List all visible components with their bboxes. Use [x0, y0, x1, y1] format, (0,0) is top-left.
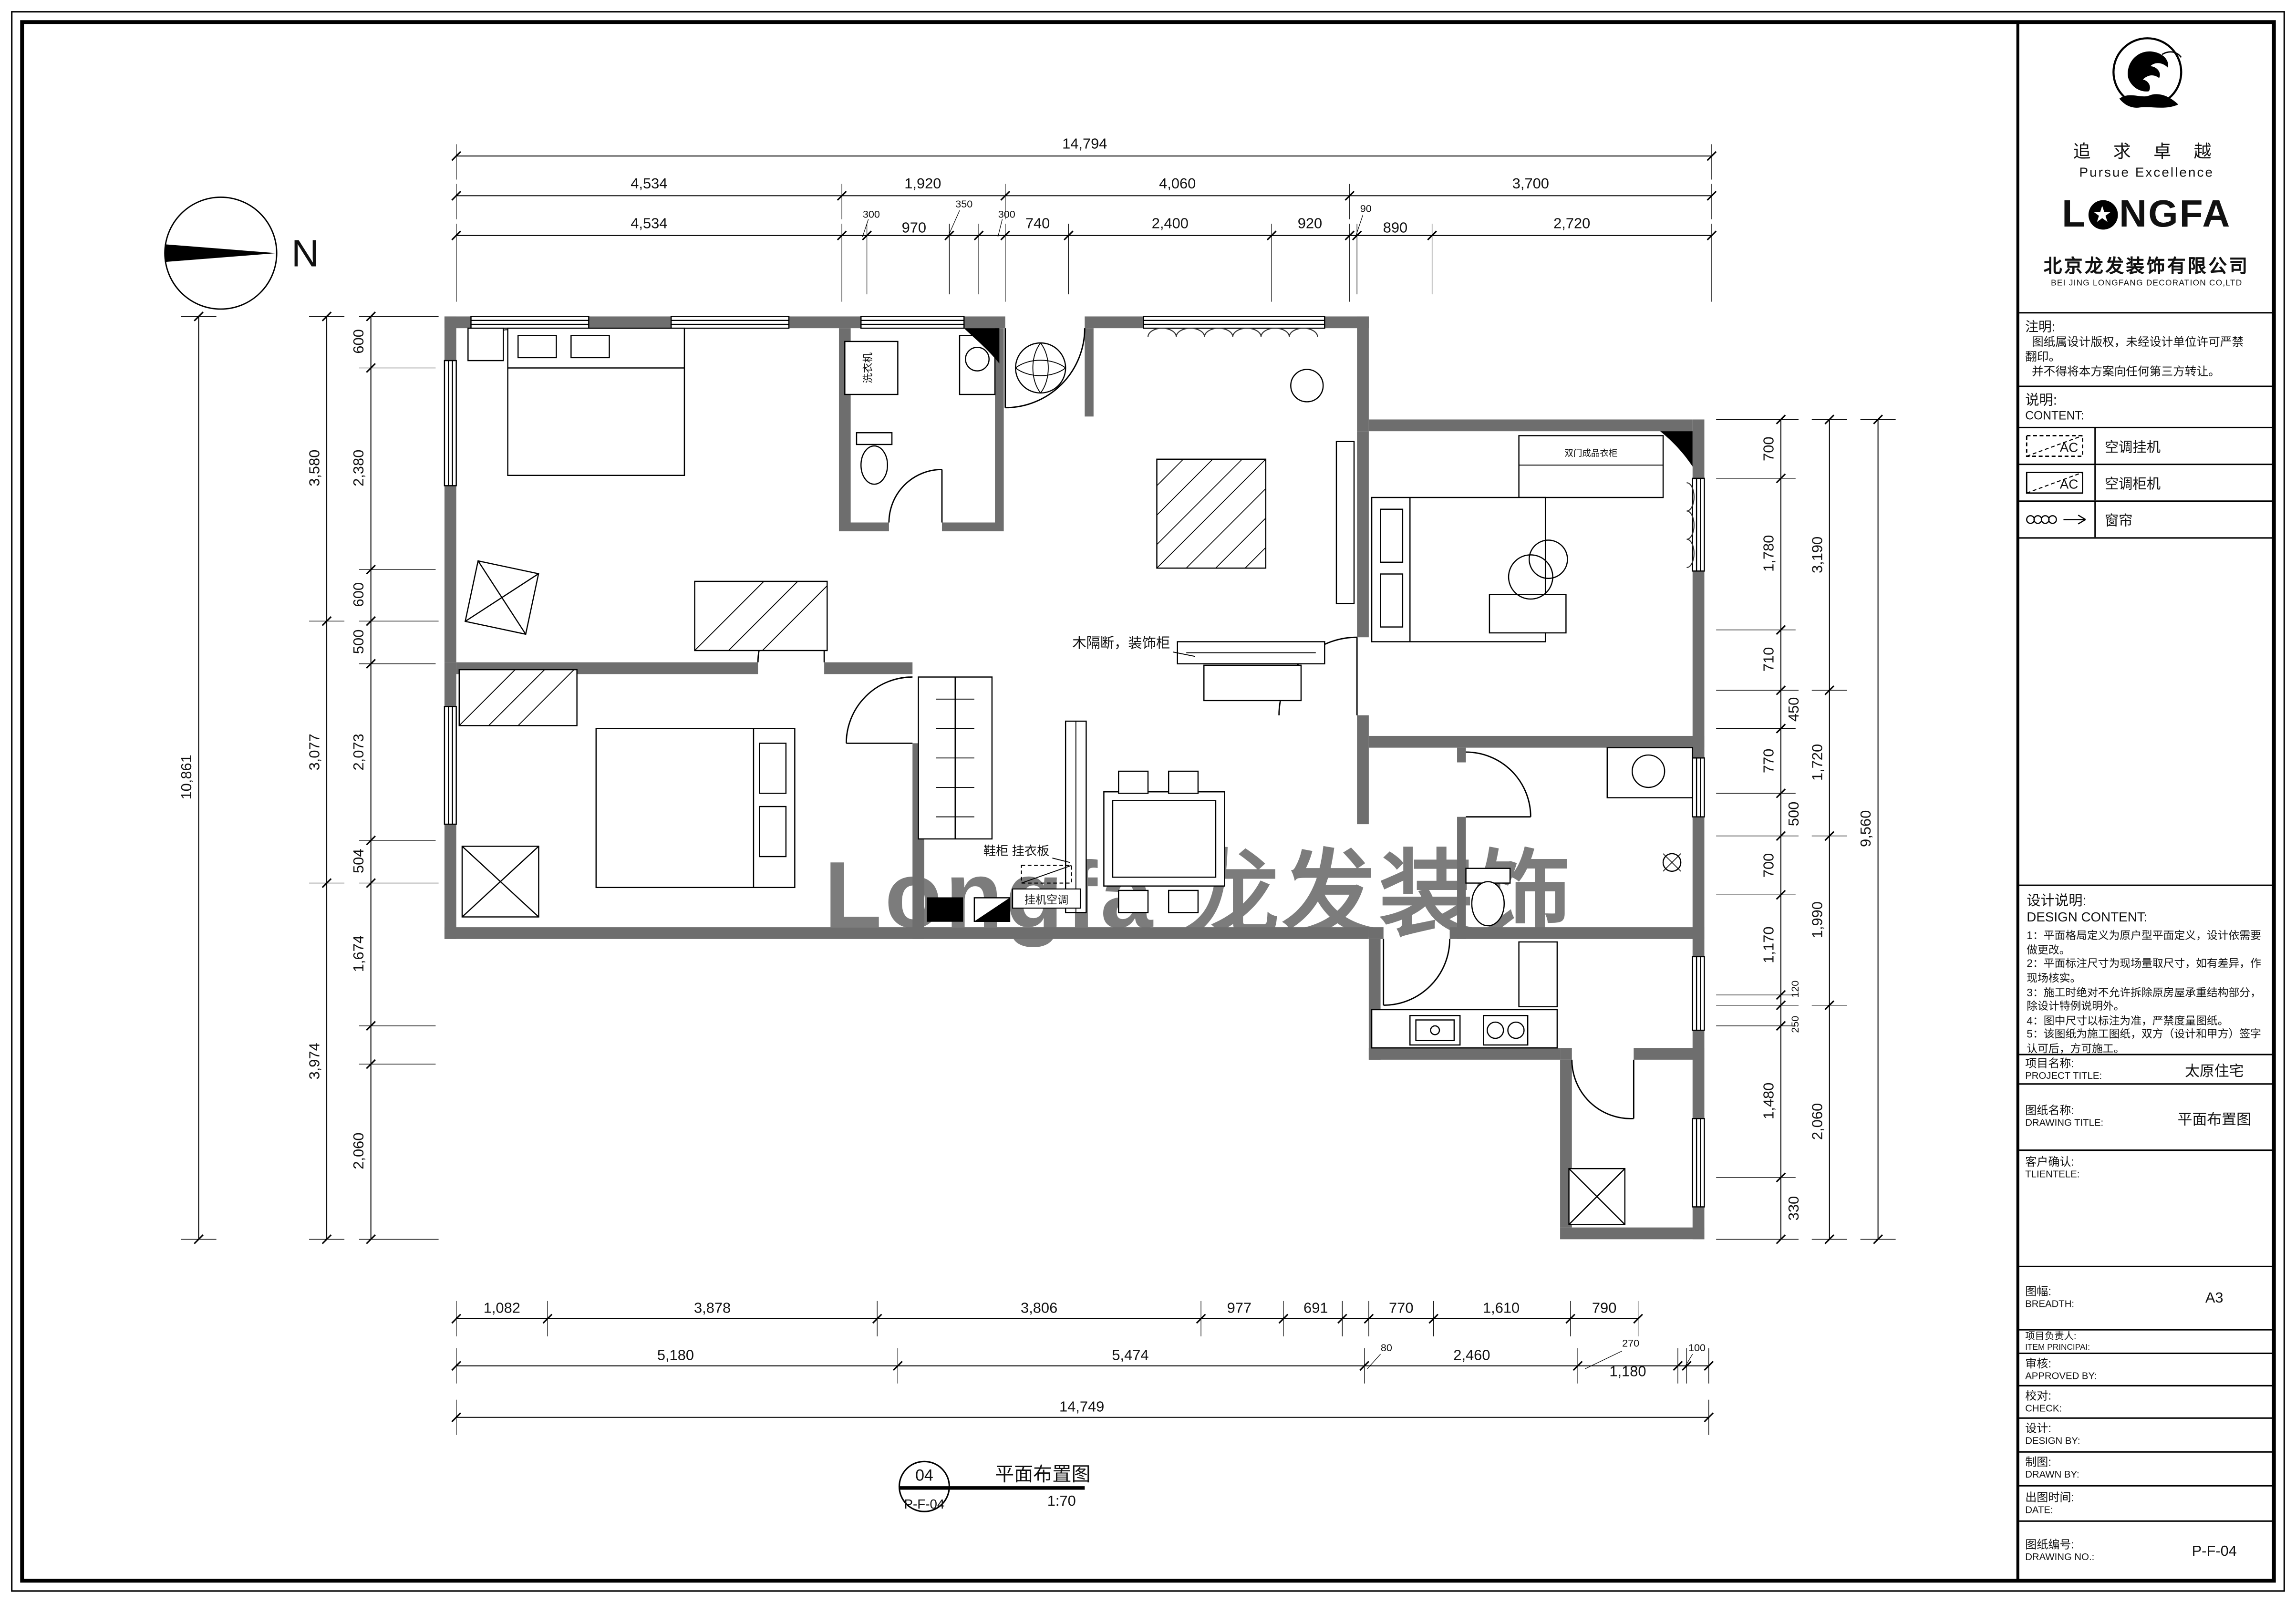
dim-text: 600	[350, 582, 367, 607]
dim-text: 300	[863, 208, 880, 220]
basin2	[1607, 748, 1693, 798]
kitchen-door	[1384, 939, 1450, 1005]
client-confirm-row: 客户确认:TLIENTELE:	[2019, 1149, 2274, 1266]
legend-row: AC 空调挂机	[2019, 427, 2274, 464]
dim-text: 920	[1298, 215, 1322, 231]
legend-row: 窗帘	[2019, 500, 2274, 537]
kitchen-counter	[1372, 1010, 1557, 1048]
design-note: 2：平面标注尺寸为现场量取尺寸，如有差异，作现场核实。	[2027, 957, 2266, 985]
row-label-cn: 审核:	[2025, 1358, 2155, 1371]
brand-wordmark: L★NGFA	[2019, 191, 2274, 237]
rug	[465, 561, 538, 634]
furniture	[459, 328, 1693, 1224]
ac-cabinet-unit-icon: AC	[2023, 466, 2091, 499]
window	[445, 706, 456, 824]
bedroom2-door	[846, 677, 912, 744]
wardrobe-right	[1519, 435, 1663, 497]
approved-value	[2155, 1354, 2274, 1385]
threshold-solid	[927, 898, 962, 921]
round-table	[1291, 370, 1323, 402]
dim-text: 90	[1360, 202, 1372, 214]
dim-text: 1,720	[1809, 744, 1825, 781]
principal-value	[2155, 1331, 2274, 1353]
check-value	[2155, 1386, 2274, 1417]
shoe-cabinet	[1065, 721, 1086, 912]
partition-label: 木隔断，装饰柜	[1072, 635, 1170, 651]
dim-text: 330	[1785, 1196, 1802, 1220]
design-by-value	[2155, 1419, 2274, 1451]
wardrobe-label: 双门成品衣柜	[1564, 448, 1617, 458]
dining-table	[1104, 792, 1224, 886]
row-label-cn: 图纸名称:	[2025, 1106, 2155, 1119]
plant-icon	[1015, 343, 1065, 393]
dim-text: 770	[1389, 1300, 1413, 1316]
window	[861, 316, 964, 328]
nightstand	[468, 328, 503, 361]
dim-text: 2,460	[1453, 1346, 1490, 1363]
toilet1	[857, 433, 892, 484]
drawing-title-value: 平面布置图	[2155, 1085, 2274, 1149]
design-note: 3：施工时绝对不允许拆除原房屋承重结构部分，除设计特例说明外。	[2027, 985, 2266, 1014]
dim-text: 120	[1789, 981, 1801, 998]
ac-hang-unit-icon: AC	[2023, 430, 2091, 462]
date-row: 出图时间:DATE:	[2019, 1485, 2274, 1520]
living-rug	[1157, 459, 1266, 568]
row-label-cn: 制图:	[2025, 1458, 2155, 1471]
dim-text: 80	[1381, 1342, 1392, 1354]
dim-text: 977	[1227, 1300, 1251, 1316]
svg-text:AC: AC	[2059, 477, 2078, 492]
stove	[1484, 1015, 1528, 1045]
dim-text: 9,560	[1857, 810, 1874, 847]
drawn-by-value	[2155, 1453, 2274, 1485]
dim-text: 270	[1622, 1337, 1639, 1349]
row-label-cn: 项目负责人:	[2025, 1332, 2155, 1343]
dim-text: 1,170	[1760, 927, 1777, 963]
ac-unit-corner	[1660, 431, 1693, 466]
design-note: 5：该图纸为施工图纸，双方（设计和甲方）签字认可后，方可施工。	[2027, 1028, 2266, 1054]
row-label-cn: 图纸编号:	[2025, 1540, 2155, 1553]
row-label-cn: 出图时间:	[2025, 1492, 2155, 1505]
window	[1693, 1118, 1705, 1207]
dim-text: 350	[955, 198, 972, 210]
project-title-row: 项目名称:PROJECT TITLE: 太原住宅	[2019, 1054, 2274, 1084]
window	[445, 361, 456, 486]
dim-text: 2,060	[1809, 1103, 1825, 1140]
company-motto-en: Pursue Excellence	[2019, 165, 2274, 180]
curtain-icon	[2023, 503, 2091, 536]
master-bed	[508, 328, 684, 476]
figure-title: 04 P-F-04 平面布置图 1:70	[899, 1461, 1090, 1511]
company-name-en: BEI JING LONGFANG DECORATION CO,LTD	[2019, 279, 2274, 289]
dim-text: 1,180	[1609, 1363, 1646, 1379]
window	[1144, 316, 1325, 328]
bed2	[596, 729, 795, 888]
dim-text: 2,380	[350, 450, 367, 486]
note-line: 翻印。	[2025, 350, 2268, 365]
approved-row: 审核:APPROVED BY:	[2019, 1353, 2274, 1385]
design-by-row: 设计:DESIGN BY:	[2019, 1417, 2274, 1451]
dim-text: 14,794	[1062, 135, 1107, 152]
title-block: 追 求 卓 越 Pursue Excellence L★NGFA 北京龙发装饰有…	[2017, 22, 2274, 1581]
dim-text: 100	[1688, 1342, 1706, 1354]
desk	[1489, 595, 1566, 633]
dim-text: 970	[902, 219, 926, 236]
drawing-sheet: N Longfa 龙发装饰	[0, 0, 2296, 1603]
row-label-cn: 设计:	[2025, 1424, 2155, 1437]
dim-text: 3,077	[306, 734, 323, 770]
row-label-en: DATE:	[2025, 1505, 2155, 1516]
dim-text: 740	[1025, 215, 1050, 231]
dim-text: 691	[1303, 1300, 1328, 1316]
design-label-en: DESIGN CONTENT:	[2027, 910, 2266, 924]
project-title-value: 太原住宅	[2155, 1055, 2274, 1084]
design-label-cn: 设计说明:	[2027, 889, 2266, 910]
figure-scale: 1:70	[1047, 1492, 1076, 1509]
dim-text: 700	[1760, 436, 1777, 461]
ac-label-box: 挂机空调	[1013, 889, 1080, 908]
row-label-en: CHECK:	[2025, 1404, 2155, 1415]
window	[1693, 957, 1705, 1030]
drawn-by-row: 制图:DRAWN BY:	[2019, 1451, 2274, 1485]
dim-text: 4,060	[1159, 175, 1196, 192]
legend-divider	[2019, 537, 2274, 538]
principal-row: 项目负责人:ITEM PRINCIPAI:	[2019, 1329, 2274, 1353]
row-label-cn: 校对:	[2025, 1390, 2155, 1404]
dim-text: 2,060	[350, 1133, 367, 1169]
tv-cabinet	[1178, 641, 1325, 663]
dim-text: 1,920	[904, 175, 941, 192]
row-label-en: ITEM PRINCIPAI:	[2025, 1343, 2155, 1353]
figure-number: 04	[915, 1466, 933, 1484]
kitchen-cabinet	[1519, 942, 1557, 1007]
note-line: 图纸属设计版权，未经设计单位许可严禁	[2025, 336, 2268, 351]
kitchen-sink	[1410, 1015, 1460, 1045]
figure-title-text: 平面布置图	[995, 1464, 1091, 1485]
row-label-en: APPROVED BY:	[2025, 1371, 2155, 1382]
bath1-door	[889, 469, 942, 522]
dim-text: 14,749	[1059, 1398, 1104, 1415]
dim-text: 250	[1789, 1016, 1801, 1033]
drawing-title-row: 图纸名称:DRAWING TITLE: 平面布置图	[2019, 1083, 2274, 1149]
corner-cabinet	[1569, 1169, 1625, 1224]
balcony-door	[1572, 1060, 1634, 1119]
row-label-en: DRAWING NO.:	[2025, 1553, 2155, 1564]
ac-label: 挂机空调	[1024, 894, 1069, 906]
dim-text: 10,861	[178, 755, 195, 799]
dim-text: 500	[1785, 802, 1802, 826]
dim-text: 770	[1760, 749, 1777, 773]
company-logo-section: 追 求 卓 越 Pursue Excellence L★NGFA 北京龙发装饰有…	[2019, 22, 2274, 312]
row-label-en: BREADTH:	[2025, 1300, 2155, 1311]
dim-text: 1,082	[484, 1300, 520, 1316]
legend-label-cn: 说明:	[2025, 389, 2268, 409]
note-line: 并不得将本方案向任何第三方转让。	[2025, 365, 2268, 380]
dim-text: 890	[1383, 219, 1407, 236]
dim-text: 1,990	[1809, 901, 1825, 938]
legend-header: 说明: CONTENT:	[2019, 386, 2274, 427]
row-label-cn: 客户确认:	[2025, 1157, 2155, 1170]
row-label-en: PROJECT TITLE:	[2025, 1071, 2155, 1082]
dim-text: 1,780	[1760, 535, 1777, 572]
dim-text: 5,474	[1112, 1346, 1148, 1363]
window	[471, 316, 589, 328]
washer-label: 洗衣机	[862, 352, 874, 383]
legend-item-label: 空调挂机	[2096, 435, 2161, 456]
window	[671, 316, 789, 328]
date-value	[2155, 1487, 2274, 1520]
dim-text: 450	[1785, 697, 1802, 722]
legend-item-label: 空调柜机	[2096, 473, 2161, 493]
dim-text: 504	[350, 849, 367, 873]
north-label: N	[291, 232, 319, 275]
wardrobe2	[459, 670, 577, 725]
dim-text: 3,878	[694, 1300, 731, 1316]
dim-text: 3,806	[1021, 1300, 1057, 1316]
shower-head-icon	[1663, 854, 1681, 871]
floorplan-canvas: N Longfa 龙发装饰	[0, 0, 2296, 1603]
legend-label-en: CONTENT:	[2025, 409, 2268, 423]
dim-text: 2,720	[1553, 215, 1590, 231]
doors	[758, 328, 1634, 1118]
dim-text: 300	[998, 208, 1015, 220]
north-compass-icon: N	[165, 197, 319, 310]
dim-text: 710	[1760, 647, 1777, 672]
design-note: 1：平面格局定义为原户型平面定义，设计依需要做更改。	[2027, 929, 2266, 957]
shoe-label: 鞋柜 挂衣板	[983, 844, 1049, 858]
master-closet	[695, 581, 827, 651]
company-name-cn: 北京龙发装饰有限公司	[2019, 250, 2274, 279]
dim-text: 1,674	[350, 935, 367, 972]
window	[1693, 758, 1705, 817]
dim-text: 4,534	[631, 175, 667, 192]
brand-l: L	[2062, 191, 2087, 237]
dragon-logo-icon	[2095, 31, 2198, 125]
brand-rest: NGFA	[2119, 191, 2231, 237]
bath2-door	[1466, 752, 1531, 817]
row-label-en: DRAWING TITLE:	[2025, 1119, 2155, 1130]
row-label-cn: 图幅:	[2025, 1287, 2155, 1300]
dim-text: 1,480	[1760, 1083, 1777, 1119]
dim-text: 4,534	[631, 215, 667, 231]
dim-text: 3,190	[1809, 537, 1825, 573]
legend-item-label: 窗帘	[2096, 509, 2132, 530]
dim-text: 3,974	[306, 1043, 323, 1079]
company-motto-cn: 追 求 卓 越	[2019, 138, 2274, 163]
client-confirm-value	[2155, 1151, 2274, 1266]
dim-text: 600	[350, 329, 367, 353]
design-notes-section: 设计说明: DESIGN CONTENT: 1：平面格局定义为原户型平面定义，设…	[2019, 885, 2274, 1054]
drawing-no-value: P-F-04	[2155, 1522, 2274, 1581]
breadth-value: A3	[2155, 1267, 2274, 1329]
dim-text: 1,610	[1483, 1300, 1520, 1316]
svg-text:AC: AC	[2059, 440, 2078, 455]
rug2	[462, 846, 538, 917]
check-row: 校对:CHECK:	[2019, 1385, 2274, 1417]
tv	[1204, 665, 1301, 701]
figure-code: P-F-04	[904, 1497, 945, 1511]
copyright-note-section: 注明: 图纸属设计版权，未经设计单位许可严禁 翻印。 并不得将本方案向任何第三方…	[2019, 312, 2274, 385]
dim-text: 790	[1592, 1300, 1616, 1316]
dim-text: 5,180	[657, 1346, 694, 1363]
row-label-cn: 项目名称:	[2025, 1058, 2155, 1071]
row-label-en: DRAWN BY:	[2025, 1470, 2155, 1481]
dim-text: 700	[1760, 853, 1777, 878]
drawing-no-row: 图纸编号:DRAWING NO.: P-F-04	[2019, 1520, 2274, 1581]
note-label: 注明:	[2025, 316, 2268, 335]
side-cabinet	[1336, 442, 1354, 603]
threshold-half	[974, 898, 1010, 921]
star-icon: ★	[2088, 199, 2118, 229]
row-label-en: DESIGN BY:	[2025, 1437, 2155, 1448]
dim-text: 3,580	[306, 450, 323, 486]
design-note: 4：图中尺寸以标注为准，严禁度量图纸。	[2027, 1014, 2266, 1028]
dim-text: 2,073	[350, 734, 367, 770]
row-label-en: TLIENTELE:	[2025, 1170, 2155, 1181]
breadth-row: 图幅:BREADTH: A3	[2019, 1266, 2274, 1329]
dim-text: 2,400	[1152, 215, 1189, 231]
legend-row: AC 空调柜机	[2019, 464, 2274, 500]
dim-text: 3,700	[1512, 175, 1549, 192]
ac-units	[927, 328, 1693, 921]
hall-closet	[919, 677, 992, 839]
dim-text: 500	[350, 630, 367, 654]
